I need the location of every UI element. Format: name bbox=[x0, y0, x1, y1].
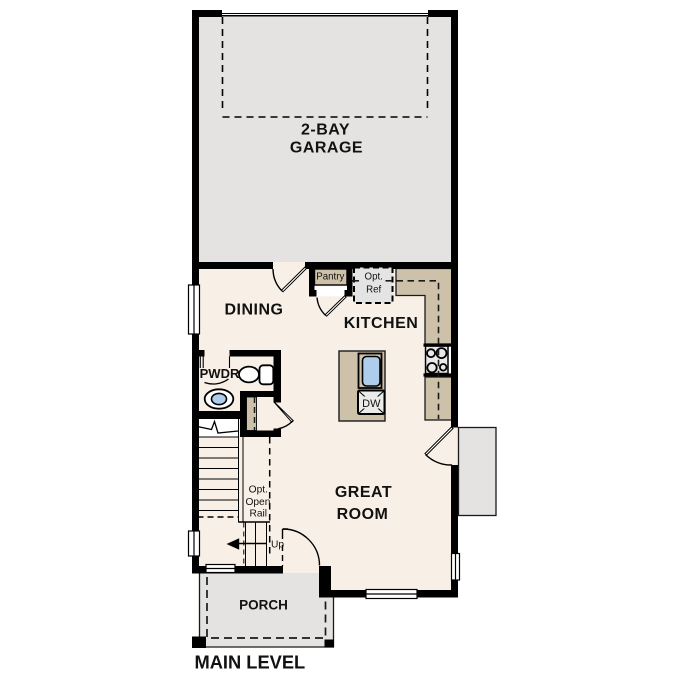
svg-text:MAIN LEVEL: MAIN LEVEL bbox=[195, 651, 306, 672]
svg-text:Opt.: Opt. bbox=[249, 484, 268, 495]
svg-text:ROOM: ROOM bbox=[337, 506, 389, 523]
svg-text:2-BAY: 2-BAY bbox=[301, 122, 350, 139]
svg-text:DW: DW bbox=[362, 398, 381, 410]
svg-text:KITCHEN: KITCHEN bbox=[344, 315, 419, 332]
svg-text:Opt.: Opt. bbox=[365, 272, 383, 283]
svg-text:GARAGE: GARAGE bbox=[290, 140, 363, 157]
svg-text:GREAT: GREAT bbox=[335, 484, 392, 501]
svg-text:Pantry: Pantry bbox=[316, 271, 344, 282]
svg-text:DINING: DINING bbox=[225, 302, 284, 319]
svg-text:Rail: Rail bbox=[250, 509, 268, 520]
svg-text:PWDR: PWDR bbox=[200, 366, 240, 381]
svg-text:Up: Up bbox=[271, 539, 284, 550]
svg-text:Ref: Ref bbox=[366, 285, 381, 296]
svg-text:PORCH: PORCH bbox=[239, 598, 288, 613]
svg-text:Open: Open bbox=[245, 497, 270, 508]
